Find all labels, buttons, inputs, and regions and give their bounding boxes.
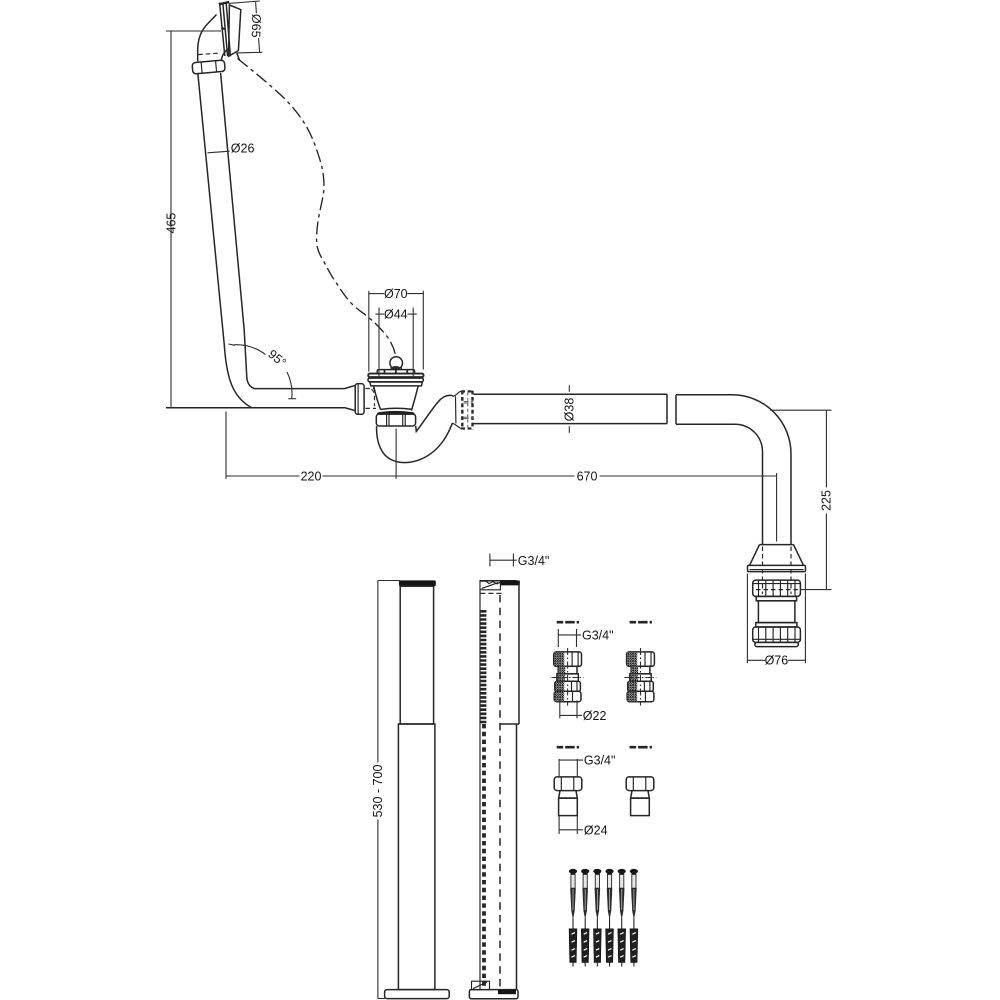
svg-text:G3/4": G3/4" (584, 754, 616, 768)
svg-text:Ø38: Ø38 (563, 398, 577, 422)
svg-text:Ø65: Ø65 (249, 14, 264, 38)
svg-text:G3/4": G3/4" (582, 629, 614, 643)
svg-text:Ø44: Ø44 (384, 307, 408, 321)
svg-text:G3/4": G3/4" (518, 554, 550, 568)
svg-text:Ø22: Ø22 (583, 709, 607, 723)
svg-text:Ø24: Ø24 (584, 823, 608, 837)
svg-text:530 - 700: 530 - 700 (371, 765, 385, 818)
svg-text:Ø70: Ø70 (384, 287, 408, 301)
svg-text:Ø76: Ø76 (765, 654, 789, 668)
svg-text:Ø26: Ø26 (231, 142, 255, 156)
svg-text:670: 670 (577, 469, 598, 483)
svg-text:220: 220 (301, 469, 322, 483)
svg-text:225: 225 (820, 490, 834, 511)
svg-text:465: 465 (165, 213, 179, 234)
